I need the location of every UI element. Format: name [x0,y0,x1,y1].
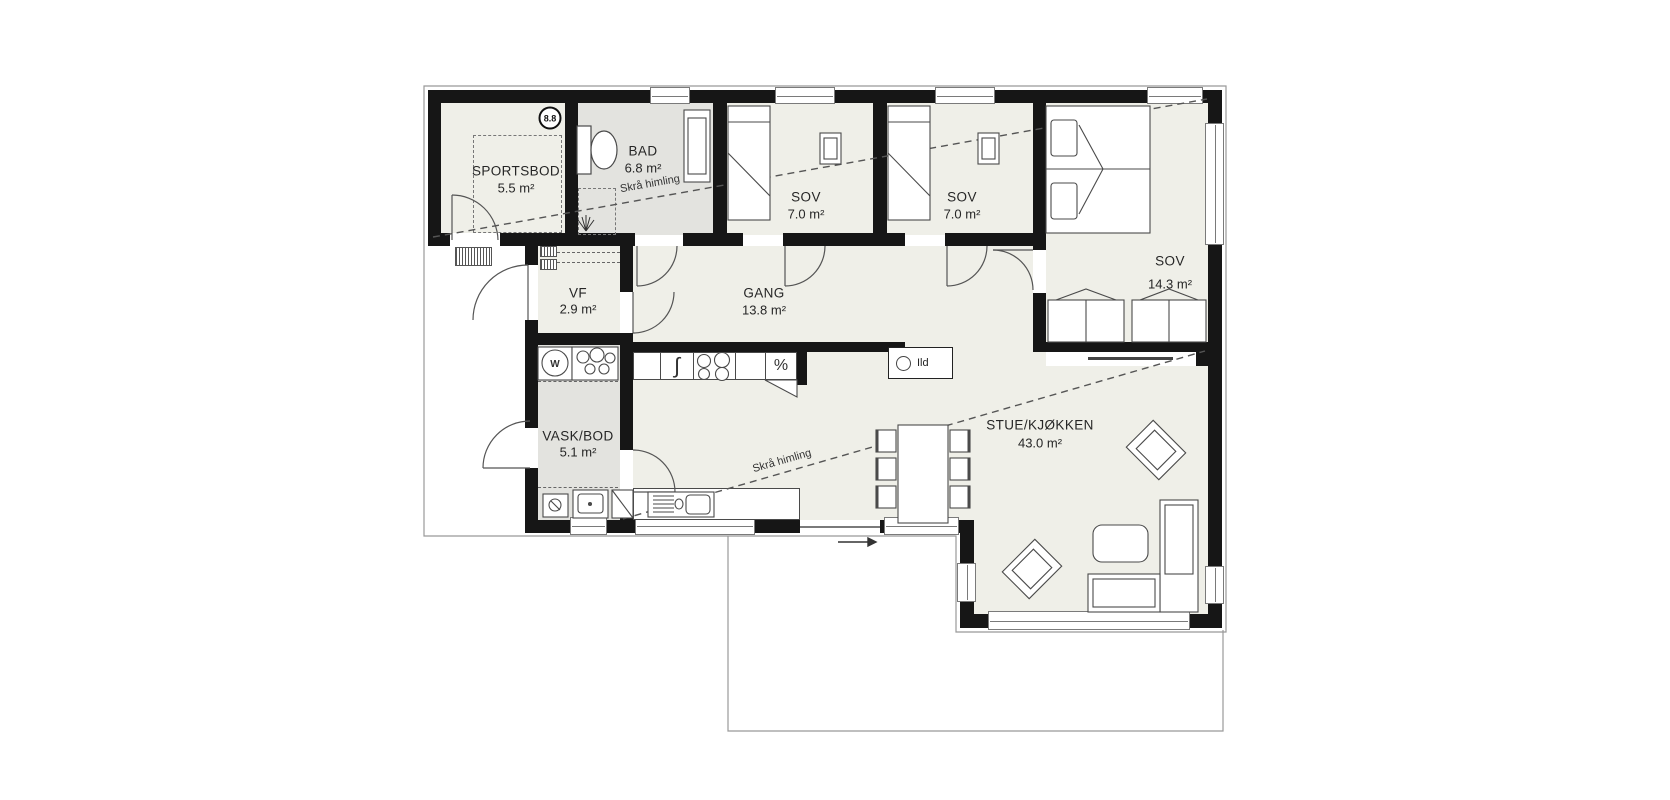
slide-direction-arrow [838,538,876,546]
room-label-stue: STUE/KJØKKEN [986,418,1094,433]
room-area-sportsbod: 5.5 m² [498,181,535,196]
closet-dashed-line [557,252,620,253]
window [1147,87,1203,104]
wall-segment [945,233,1033,246]
wall-segment [1196,352,1208,366]
window [775,87,835,104]
window [1205,123,1224,245]
sliding-door-track [800,526,880,528]
wall-left [428,90,441,246]
wall-mid-segment [620,246,633,292]
kitchen-counter-unit [735,352,766,380]
room-area-vf: 2.9 m² [560,302,597,317]
dishwasher-icon: ∫ [674,353,680,379]
wall-bad-sov1 [713,103,727,235]
room-area-sov2: 7.0 m² [944,207,981,222]
room-floor-sov-master [1046,103,1208,342]
door-mat [540,246,557,257]
room-label-gang: GANG [743,286,784,301]
counter-dashed-line [538,381,618,382]
fridge-freezer-icon: % [774,357,788,375]
room-label-vask: VASK/BOD [542,429,613,444]
room-label-sov1: SOV [791,190,821,205]
wall-west-segment [525,320,538,428]
room-label-sov-master: SOV [1155,254,1185,269]
wall-west-segment [525,246,538,265]
window-living-large [988,611,1190,630]
wall-vf-bottom [525,333,620,345]
window [957,563,976,602]
room-floor-stue-protrusion [974,520,1208,614]
room-floor-gang [633,246,1033,342]
wall-sov1-sov2 [873,103,887,235]
ridge-height-badge: 8.8 [539,107,562,130]
wall-segment [1033,235,1046,250]
room-area-sov-master: 14.3 m² [1148,277,1192,292]
window [650,87,690,104]
door-vask-entrance [483,421,530,468]
fireplace-box: Ild [888,347,953,379]
room-label-sportsbod: SPORTSBOD [472,164,560,179]
floorplan-canvas: ∫ % Ild 8.8 [0,0,1670,800]
room-label-vf: VF [569,286,587,301]
room-label-bad: BAD [629,144,658,159]
room-area-gang: 13.8 m² [742,303,786,318]
wall-kitchen-stub [797,352,807,385]
counter-dashed-line [538,487,618,488]
room-area-stue: 43.0 m² [1018,436,1062,451]
room-area-vask: 5.1 m² [560,445,597,460]
window [935,87,995,104]
wall-sportsbod-bad [565,103,578,233]
fireplace-icon [896,356,911,371]
wall-mid-segment [620,333,633,450]
door-mat [455,247,492,266]
cooktop [693,352,736,380]
wall-mid-segment [620,492,633,520]
wall-master-bottom [1033,342,1208,352]
window [1205,566,1224,604]
wall-segment [1033,293,1046,342]
kitchen-counter-unit [633,352,661,380]
fireplace-label: Ild [917,357,929,369]
window [570,517,607,535]
room-label-sov2: SOV [947,190,977,205]
door-vf-entrance [473,265,528,320]
closet-dashed-line [557,262,620,263]
kitchen-counter-sink-run [633,488,800,520]
room-area-sov1: 7.0 m² [788,207,825,222]
wall-kitchen-back [622,342,905,352]
shower-outline [578,188,616,235]
room-area-bad: 6.8 m² [625,161,662,176]
window [884,517,959,535]
door-mat [540,259,557,270]
master-sliding-door [1046,352,1196,366]
wall-sov2-master [1033,103,1046,235]
wall-west-segment [525,468,538,520]
